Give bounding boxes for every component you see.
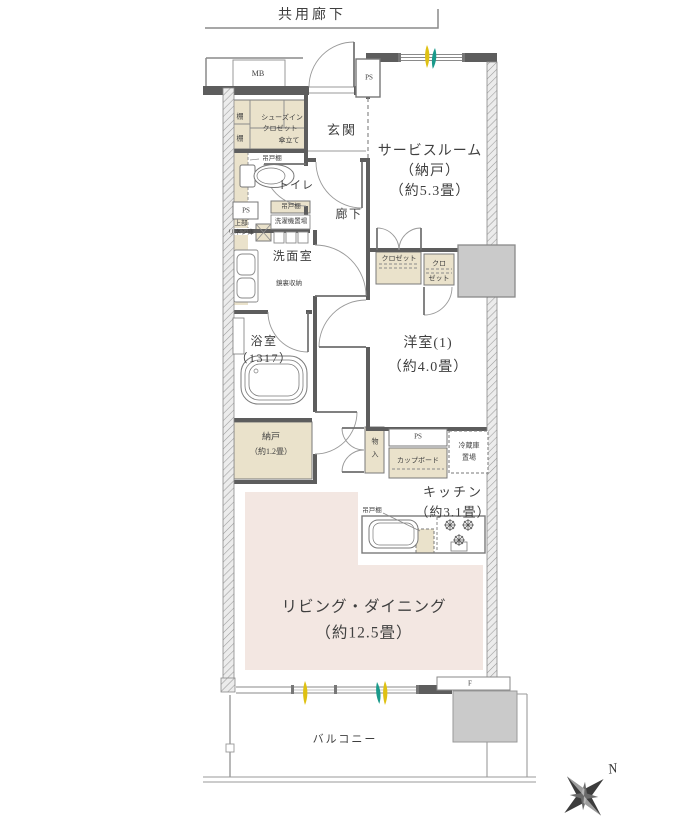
balcony-label: バルコニー [313, 735, 378, 746]
closet-small-label-1: クロ [432, 261, 446, 268]
cupboard-label: カップボード [397, 458, 439, 465]
living-dining-label-1: リビング・ダイニング [281, 599, 446, 615]
fridge-space-box [449, 431, 488, 473]
hallway-label: 廊下 [335, 208, 362, 220]
fix-window-box [437, 677, 510, 690]
shoes-closet-label-2: クロゼット [263, 126, 298, 133]
service-room-window [398, 53, 465, 62]
floorplan: 共用廊下 MB PS 棚 棚 シューズイン クロゼット 傘立て 玄関 サービスル… [0, 0, 685, 827]
marker-yellow-flame-balcony2 [383, 681, 387, 705]
toilet-label: トイレ [278, 181, 314, 192]
nando-label-1: 納戸 [262, 433, 280, 442]
shelf-label-1: 棚 [237, 114, 244, 121]
toilet-cupboard-label: 吊戸棚 [262, 156, 282, 163]
marker-yellow-flame-balcony1 [303, 681, 307, 705]
stove-burners [444, 519, 474, 546]
nando-label-2: （約1.2畳） [250, 448, 292, 456]
balcony-equipment-box [453, 691, 517, 742]
washer-space-label: 洗濯機置場 [275, 219, 308, 226]
mono-ire-label-2: 入 [372, 452, 379, 459]
mirror-storage-label: 鏡裏収納 [276, 281, 302, 288]
ps-left-label: PS [242, 208, 250, 215]
laundry-cupboard-label: 吊戸棚 [281, 204, 301, 211]
kitchen-label-1: キッチン [423, 486, 483, 499]
washroom-label: 洗面室 [273, 250, 314, 262]
umbrella-stand-label: 傘立て [279, 138, 300, 145]
living-dining-label-2: （約12.5畳） [315, 625, 412, 641]
toilet-cupboard-leader [250, 159, 259, 160]
balcony-windows [236, 685, 419, 694]
linen-label-2: リネン庫 [228, 230, 254, 237]
pillar [458, 245, 515, 297]
fix-window-label: F [468, 681, 472, 688]
service-room-label-3: （約5.3畳） [390, 185, 471, 199]
closet-small-label-2: ゼット [429, 276, 450, 283]
common-corridor-label: 共用廊下 [278, 9, 346, 23]
service-room-label-1: サービスルーム [378, 145, 483, 159]
linen-label-1: 上部 [235, 221, 248, 228]
shoes-closet-label-1: シューズイン [261, 115, 303, 122]
kitchen-label-2: （約3.1畳） [415, 506, 490, 519]
bathroom-label-1: 浴室 [250, 335, 277, 347]
mono-ire-label-1: 物 [372, 439, 379, 446]
fridge-label-1: 冷蔵庫 [459, 443, 480, 450]
closet-label: クロゼット [382, 256, 417, 263]
ps-top-label: PS [365, 75, 373, 82]
kitchen-cupboard-label: 吊戸棚 [362, 508, 382, 515]
fridge-label-2: 置場 [462, 455, 476, 462]
bathroom-label-2: （1317） [235, 352, 292, 364]
service-room-label-2: （納戸） [400, 165, 460, 179]
western-room-label-2: （約4.0畳） [388, 361, 469, 375]
entrance-label: 玄関 [327, 124, 357, 137]
shelf-label-2: 棚 [237, 136, 244, 143]
vanity [234, 250, 258, 302]
marker-yellow-flame [425, 45, 429, 68]
ps-kitchen-label: PS [414, 434, 422, 441]
western-room-label-1: 洋室(1) [403, 337, 452, 351]
mb-label: MB [252, 70, 264, 78]
marker-teal-flame [431, 48, 437, 69]
